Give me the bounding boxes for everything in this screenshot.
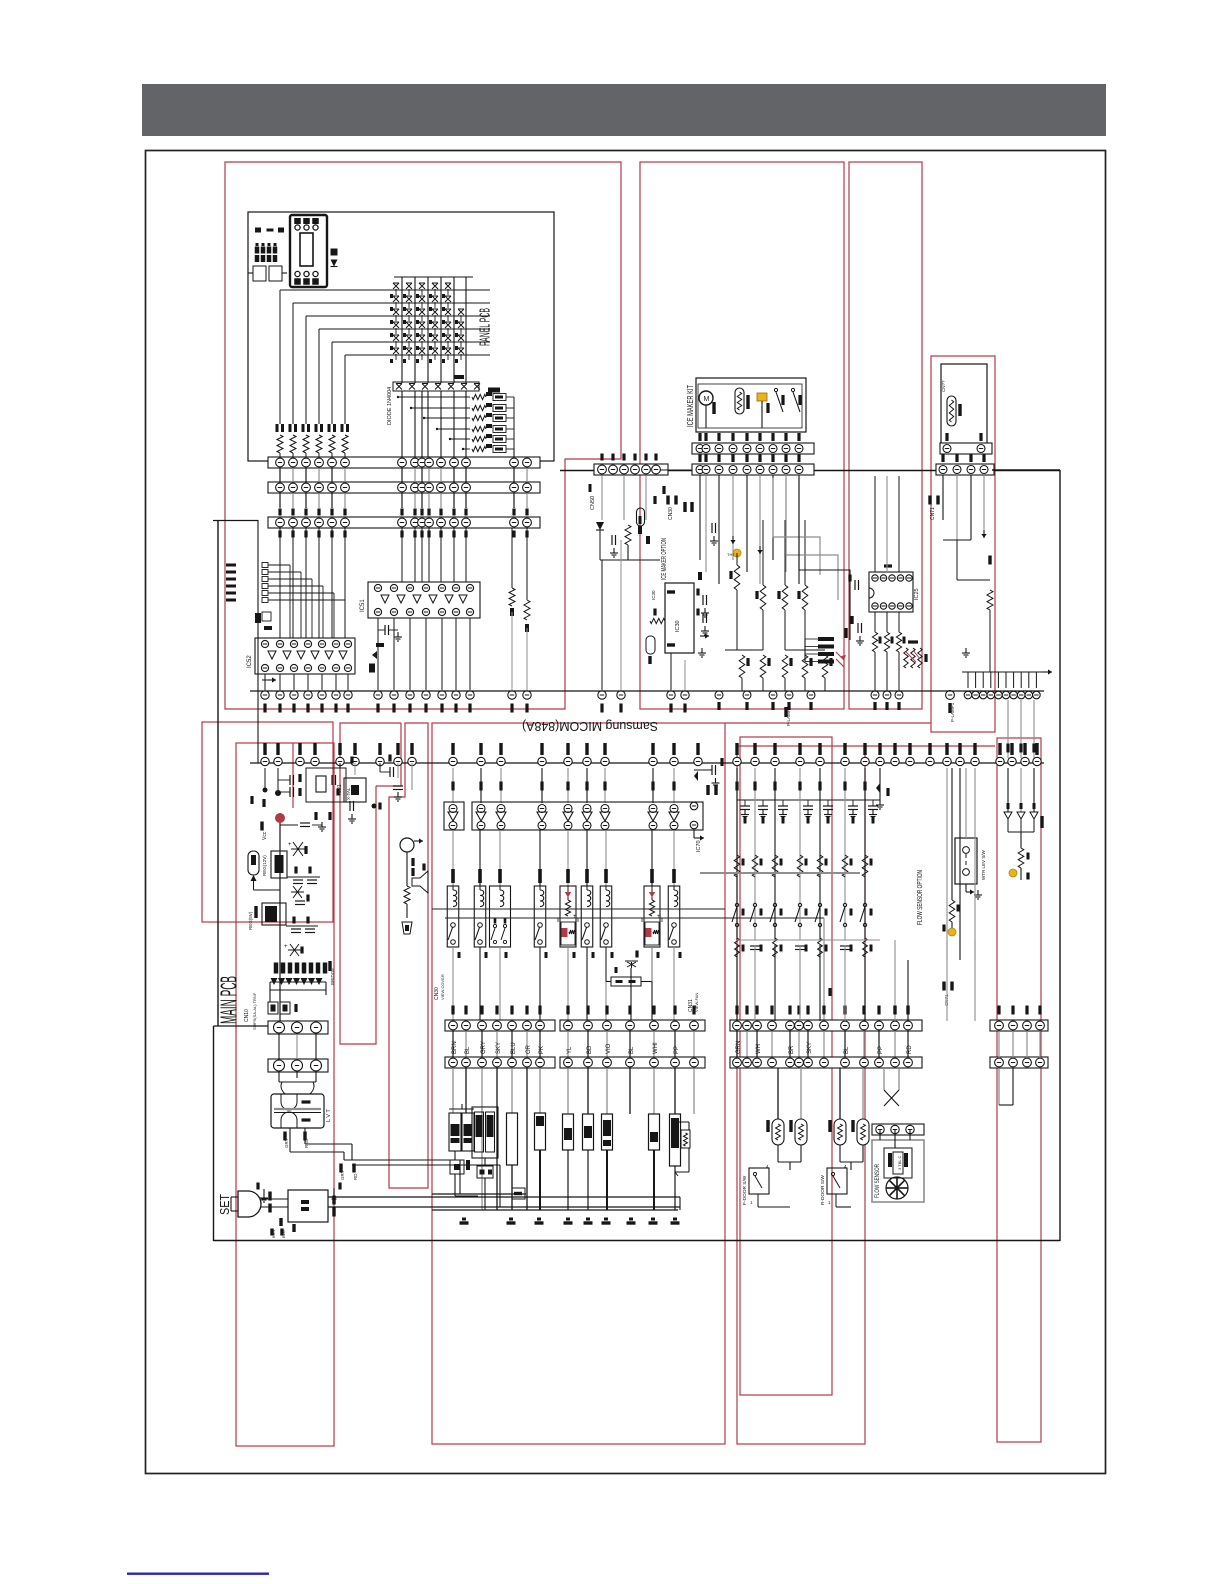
svg-text:BD: BD (587, 1045, 593, 1054)
svg-text:IC25: IC25 (914, 588, 920, 600)
svg-text:REG(12V): REG(12V) (262, 855, 267, 876)
svg-text:BLU: BLU (281, 1230, 286, 1238)
svg-text:WHI: WHI (653, 1042, 659, 1054)
svg-text:F-DOOR S/W: F-DOOR S/W (742, 1175, 748, 1205)
svg-text:IC30: IC30 (675, 620, 681, 632)
svg-text:REG(5V): REG(5V) (248, 911, 253, 930)
svg-text:BRN: BRN (271, 1229, 276, 1238)
svg-text:1: 1 (750, 1200, 753, 1205)
svg-text:RD: RD (353, 1173, 358, 1180)
svg-text:M: M (704, 396, 710, 403)
svg-text:SKY: SKY (807, 1042, 813, 1054)
svg-text:IC21: IC21 (337, 784, 343, 795)
svg-text:CN10: CN10 (244, 1009, 250, 1022)
svg-text:VIEW-COVER: VIEW-COVER (440, 974, 445, 1000)
svg-text:SKY: SKY (496, 1042, 502, 1054)
svg-text:BRIDGE: BRIDGE (330, 968, 335, 985)
svg-text:GRY: GRY (481, 1041, 487, 1054)
svg-text:1: 1 (828, 1200, 831, 1205)
svg-text:WTR LEV S/W: WTR LEV S/W (981, 849, 986, 880)
svg-text:GRN: GRN (736, 1041, 742, 1054)
svg-text:FLOW SENSOR: FLOW SENSOR (875, 1163, 881, 1198)
svg-text:BRN: BRN (452, 1041, 458, 1054)
svg-text:Samsung MICOM(848A): Samsung MICOM(848A) (522, 719, 658, 734)
svg-text:L V T: L V T (326, 1109, 332, 1122)
svg-text:RD: RD (907, 1045, 913, 1054)
svg-text:FLOW SENSOR OPTION: FLOW SENSOR OPTION (915, 870, 924, 925)
svg-text:VIO: VIO (606, 1043, 612, 1054)
svg-text:3 TBL C: 3 TBL C (897, 1155, 902, 1170)
svg-text:OR: OR (526, 1044, 532, 1054)
svg-text:YL: YL (567, 1046, 573, 1054)
svg-text:BLU: BLU (511, 1042, 517, 1054)
svg-text:VIEW-FAN: VIEW-FAN (694, 993, 699, 1012)
svg-text:+: + (573, 914, 577, 920)
svg-text:PK: PK (539, 1046, 545, 1054)
svg-text:CN50: CN50 (590, 496, 596, 510)
svg-text:GRY: GRY (284, 1138, 289, 1148)
svg-text:X-TAL: X-TAL (346, 787, 351, 800)
svg-text:R-DOOR S/W: R-DOOR S/W (820, 1175, 826, 1205)
svg-text:BL: BL (844, 1046, 850, 1054)
svg-text:P-LAMP2: P-LAMP2 (786, 706, 791, 726)
svg-text:Vcc: Vcc (262, 831, 268, 840)
svg-text:DIODE 1N4004: DIODE 1N4004 (387, 387, 393, 425)
svg-text:P-LAMP1: P-LAMP1 (950, 702, 955, 722)
svg-text:PANEL PCB: PANEL PCB (477, 308, 494, 346)
svg-text:CN??: CN?? (941, 380, 946, 392)
svg-text:CN71: CN71 (930, 507, 936, 520)
svg-text:BL: BL (465, 1046, 471, 1054)
svg-text:BR: BR (789, 1045, 795, 1054)
svg-text:+: + (284, 944, 288, 950)
svg-text:+: + (288, 842, 292, 848)
svg-text:TH7: TH7 (727, 552, 735, 557)
svg-text:ICE MAKER KIT: ICE MAKER KIT (686, 385, 695, 427)
svg-text:BL: BL (629, 1046, 635, 1054)
svg-text:IC52: IC52 (247, 655, 253, 668)
svg-text:+: + (657, 914, 661, 920)
svg-text:ICE MAKER OPTION: ICE MAKER OPTION (661, 538, 668, 580)
svg-text:MAIN PCB: MAIN PCB (216, 976, 242, 1024)
svg-text:CN30: CN30 (668, 507, 674, 520)
svg-text:SET: SET (217, 1194, 232, 1215)
svg-text:IC70: IC70 (696, 840, 702, 852)
svg-text:IC30: IC30 (651, 590, 656, 600)
svg-text:PP: PP (878, 1046, 884, 1054)
svg-text:PP: PP (674, 1046, 680, 1054)
svg-text:SMPS(SA-AL) TRNF: SMPS(SA-AL) TRNF (252, 992, 257, 1030)
svg-text:IC51: IC51 (360, 599, 366, 612)
svg-text:GRY: GRY (340, 1170, 345, 1180)
svg-text:WH: WH (756, 1044, 762, 1054)
